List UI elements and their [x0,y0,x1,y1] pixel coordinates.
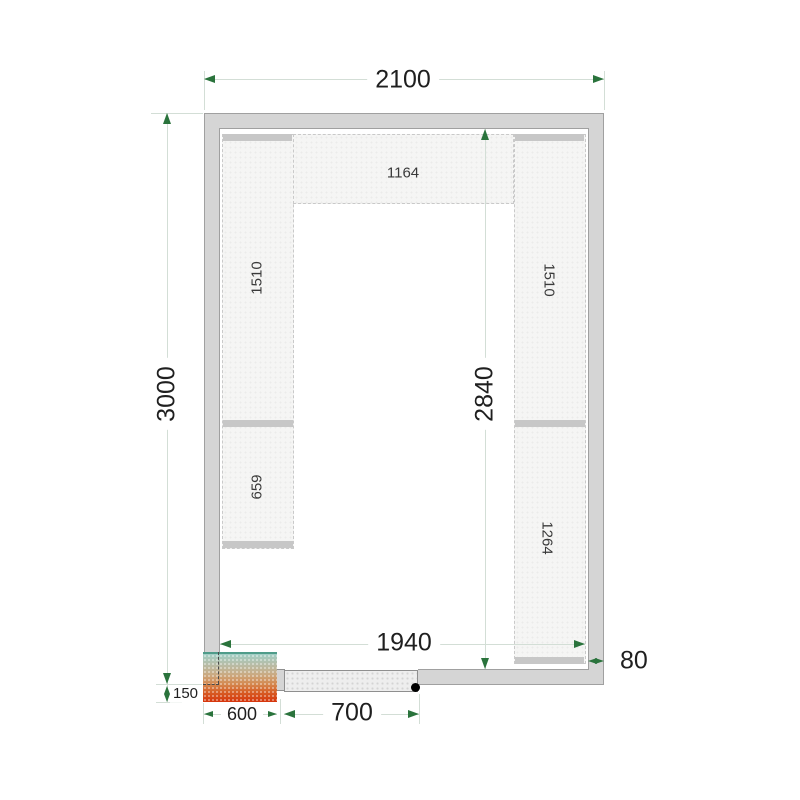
dim-outer-width-ext-right [604,71,605,110]
dim-arrow-icon [593,75,604,83]
dim-shared-ext [280,699,281,724]
dim-arrow-icon [204,711,213,717]
dim-arrow-icon [408,710,419,718]
shelf-left-top-bar [223,134,292,141]
shelf-right-upper-label: 1510 [541,263,558,296]
shelf-left-divider-bar [223,420,293,427]
door-hinge-dot [411,683,420,692]
dim-arrow-icon [574,640,585,648]
shelf-right-bottom-bar [515,657,584,664]
dim-arrow-icon [284,710,295,718]
dim-arrow-icon [595,658,604,664]
dim-unit-offset-label: 150 [170,686,201,703]
dim-arrow-icon [163,673,171,684]
hidden-wall-edge-vertical [218,652,219,684]
shelf-left-upper-label: 1510 [249,261,266,294]
dim-arrow-icon [481,658,489,669]
cooling-unit [203,652,277,702]
dim-arrow-icon [163,113,171,124]
dim-door-ext-right [419,694,420,724]
shelf-top-label: 1164 [387,165,419,182]
dim-arrow-icon [268,711,277,717]
dim-inner-height-label: 2840 [471,358,499,430]
shelf-right-top-bar [515,134,584,141]
door-leaf [284,670,418,692]
dim-arrow-icon [220,640,231,648]
dim-outer-height-ext-top [151,113,203,114]
floor-plan: 1164 1510 659 1510 1264 2100 3000 2840 1… [0,0,800,800]
dim-door-label: 700 [323,699,381,727]
shelf-right-lower-label: 1264 [539,521,556,554]
shelf-right-column [514,134,586,664]
dim-wall-thickness-label: 80 [612,647,656,675]
shelf-right-divider-bar [515,420,585,427]
dim-unit-width-label: 600 [221,705,263,725]
dim-inner-width-label: 1940 [368,629,440,657]
dim-outer-width-label: 2100 [367,66,439,94]
dim-arrow-icon [481,129,489,140]
shelf-left-bottom-bar [223,541,293,548]
hidden-wall-edge-horizontal [203,684,219,685]
dim-arrow-icon [204,75,215,83]
shelf-left-lower-label: 659 [249,474,266,499]
dim-outer-height-label: 3000 [153,358,181,430]
